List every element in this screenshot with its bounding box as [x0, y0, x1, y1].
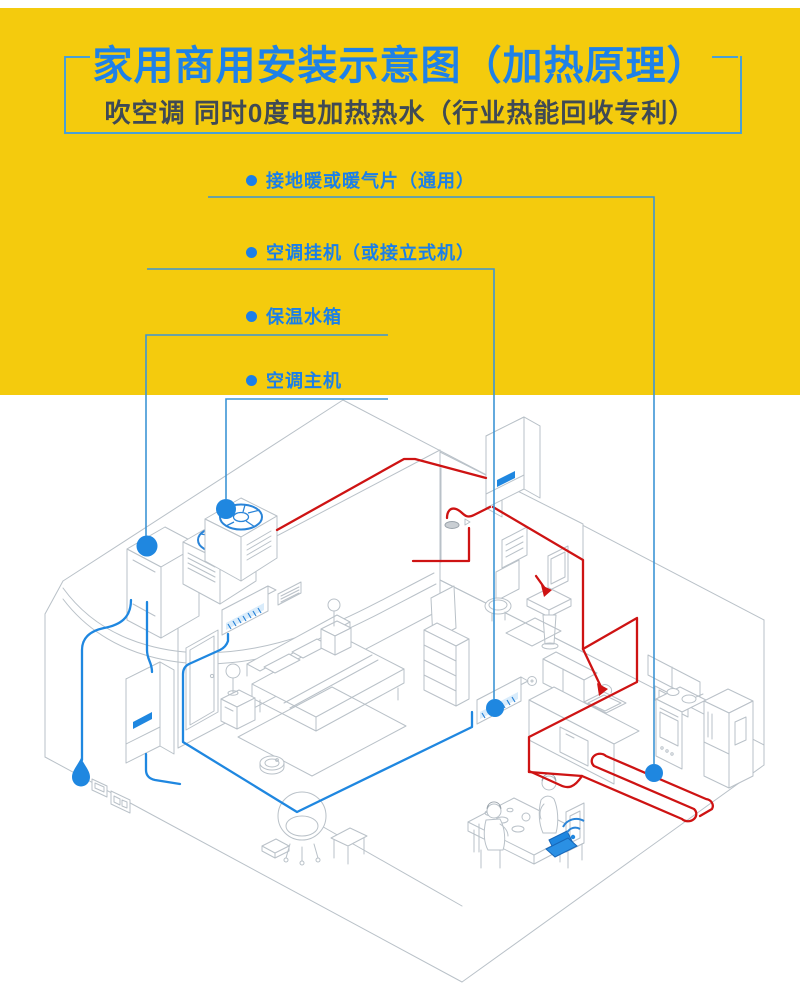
leader-dot-water-tank [137, 536, 158, 557]
isometric-house-diagram [0, 0, 800, 1001]
wall-hung-boiler-icon [126, 662, 174, 763]
water-drop-icon [72, 758, 90, 787]
robot-vacuum-icon [260, 756, 284, 774]
fridge-icon [704, 689, 753, 788]
stove-oven-icon [656, 687, 706, 769]
wall-socket-icon [92, 779, 130, 813]
armchair-icon [278, 792, 326, 865]
poster-canvas: 家用商用安装示意图（加热原理） 吹空调 同时0度电加热热水（行业热能回收专利） … [0, 0, 800, 1001]
leader-dot-floor-heating [645, 764, 663, 782]
bedroom-door [186, 630, 218, 730]
tv-dresser-icon [424, 586, 469, 706]
leader-dot-outdoor-unit [216, 499, 236, 519]
leader-dot-indoor-ac [486, 699, 504, 717]
air-vent-icon [278, 582, 301, 605]
indoor-ac-dining-icon [477, 677, 528, 724]
